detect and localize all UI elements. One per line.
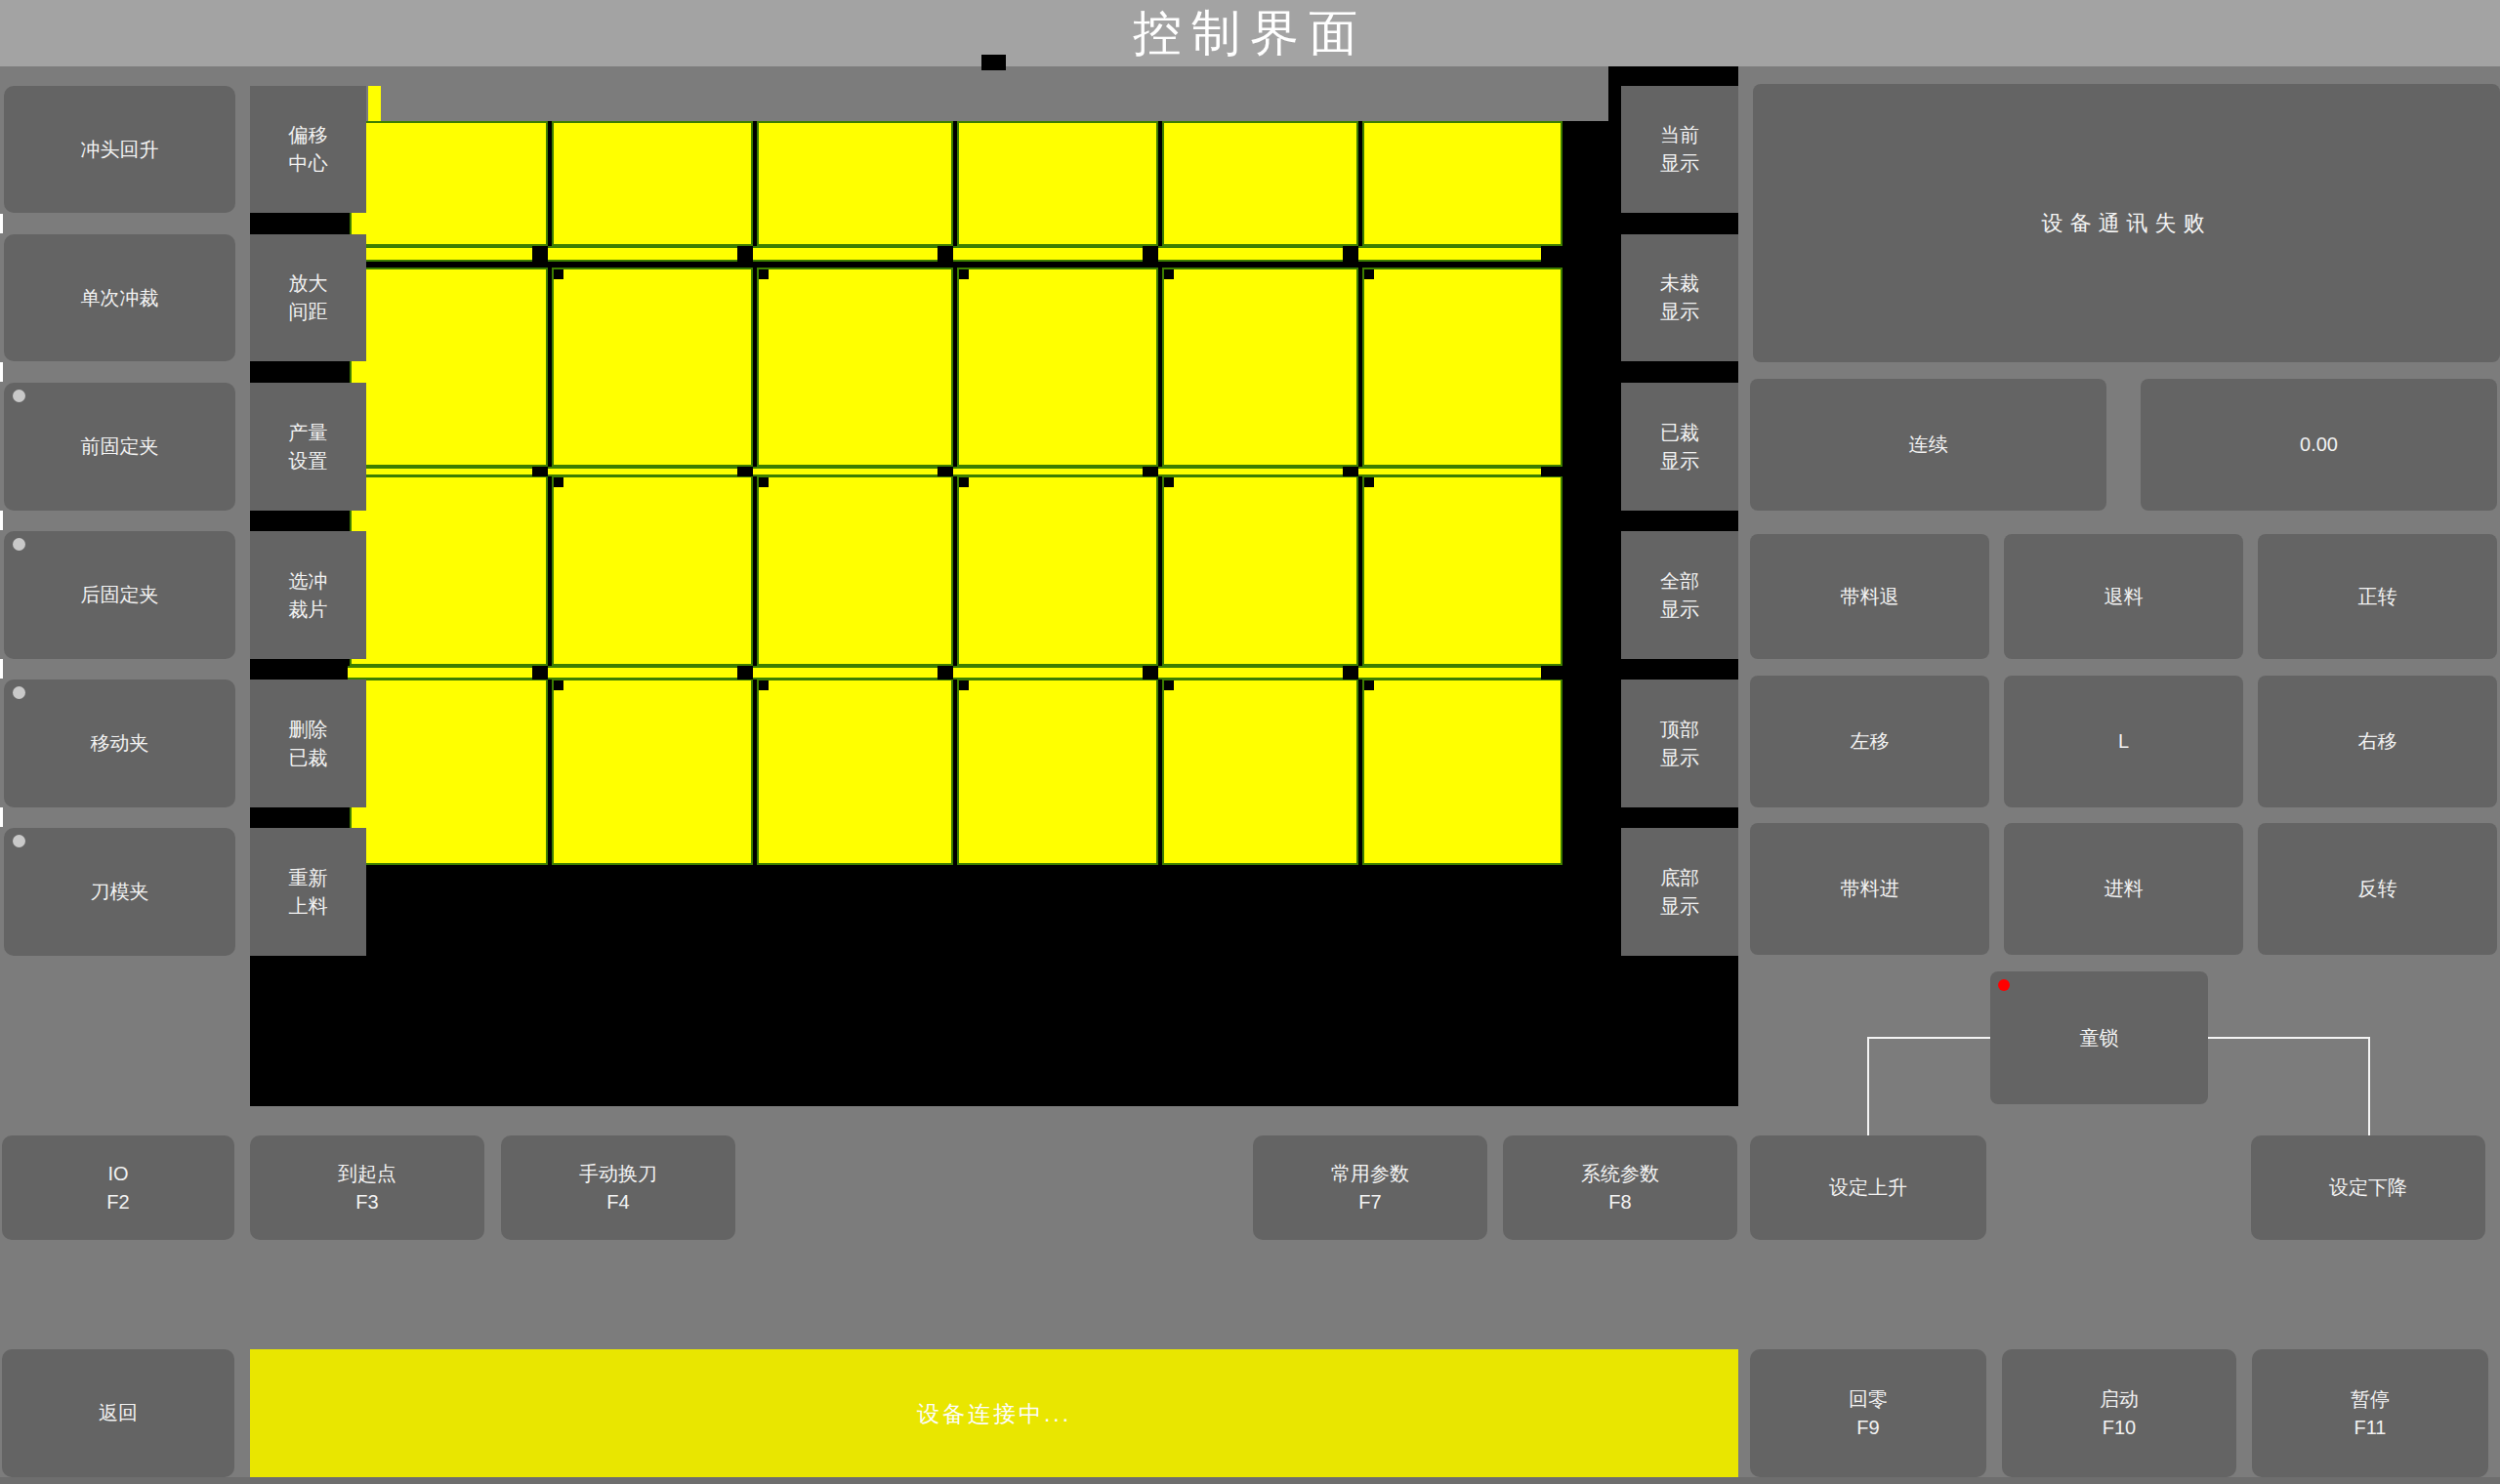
cut-piece[interactable] (1362, 268, 1562, 467)
io-f2-button[interactable]: IOF2 (2, 1135, 234, 1240)
display-cut-button[interactable]: 已裁显示 (1621, 383, 1738, 511)
edge-tick (0, 214, 3, 233)
rear-fixed-clamp-button[interactable]: 后固定夹 (4, 531, 235, 659)
set-rise-button[interactable]: 设定上升 (1750, 1135, 1986, 1240)
strip-notch (937, 467, 953, 476)
cut-piece[interactable] (552, 475, 753, 666)
moving-clamp-button[interactable]: 移动夹 (4, 680, 235, 807)
strip-notch (737, 467, 753, 476)
button-label: 常用参数 (1331, 1160, 1409, 1188)
cut-strip (348, 666, 1562, 680)
button-label: 显示 (1660, 596, 1699, 624)
cut-piece[interactable] (757, 268, 953, 467)
fkey-label: F7 (1358, 1188, 1381, 1216)
value-display[interactable]: 0.00 (2141, 379, 2497, 511)
button-label: 重新 (289, 864, 328, 892)
button-label: 设置 (289, 447, 328, 475)
child-lock-connector (2368, 1037, 2370, 1135)
pause-f11-button[interactable]: 暂停F11 (2252, 1349, 2488, 1477)
button-label: 已裁 (289, 744, 328, 772)
cut-piece[interactable] (757, 475, 953, 666)
strip-notch (1143, 666, 1158, 680)
cut-piece[interactable] (552, 121, 753, 246)
offset-center-button[interactable]: 偏移中心 (250, 86, 366, 213)
l-button[interactable]: L (2004, 676, 2243, 807)
indicator-dot (13, 686, 25, 699)
fkey-label: F8 (1608, 1188, 1631, 1216)
cut-strip (348, 467, 1562, 476)
strip-notch (1343, 246, 1358, 262)
common-params-f7-button[interactable]: 常用参数F7 (1253, 1135, 1487, 1240)
button-label: 刀模夹 (91, 878, 149, 906)
delete-cut-button[interactable]: 删除已裁 (250, 680, 366, 807)
punch-raise-button[interactable]: 冲头回升 (4, 86, 235, 213)
button-label: 显示 (1660, 447, 1699, 475)
strip-notch (1143, 467, 1158, 476)
strip-notch (1343, 666, 1358, 680)
cut-piece[interactable] (350, 475, 548, 666)
cut-piece[interactable] (957, 679, 1158, 865)
connection-status-text: 设备连接中... (917, 1399, 1071, 1429)
button-label: 设定上升 (1829, 1174, 1907, 1202)
button-label: 左移 (1851, 727, 1890, 756)
canvas-top-band (250, 66, 1608, 121)
strip-notch (532, 246, 548, 262)
front-fixed-clamp-button[interactable]: 前固定夹 (4, 383, 235, 511)
button-label: 移动夹 (91, 729, 149, 758)
strip-notch (1541, 246, 1562, 262)
button-label: 上料 (289, 892, 328, 921)
button-label: 底部 (1660, 864, 1699, 892)
title-bar: 控制界面 (0, 0, 2500, 66)
rotate-forward-button[interactable]: 正转 (2258, 534, 2497, 659)
button-label: L (2118, 727, 2129, 756)
button-label: 反转 (2358, 875, 2397, 903)
display-top-button[interactable]: 顶部显示 (1621, 680, 1738, 807)
cut-piece[interactable] (552, 679, 753, 865)
unload-material-button[interactable]: 退料 (2004, 534, 2243, 659)
button-label: 中心 (289, 149, 328, 178)
fkey-label: F2 (106, 1188, 129, 1216)
cut-piece[interactable] (757, 679, 953, 865)
page-title: 控制界面 (1133, 1, 1367, 66)
display-uncut-button[interactable]: 未裁显示 (1621, 234, 1738, 361)
move-right-button[interactable]: 右移 (2258, 676, 2497, 807)
strip-notch (1143, 246, 1158, 262)
button-label: 显示 (1660, 892, 1699, 921)
bottom-edge (0, 1477, 2500, 1484)
edge-tick (0, 659, 3, 679)
system-params-f8-button[interactable]: 系统参数F8 (1503, 1135, 1737, 1240)
display-bottom-button[interactable]: 底部显示 (1621, 828, 1738, 956)
display-all-button[interactable]: 全部显示 (1621, 531, 1738, 659)
button-label: 带料退 (1841, 583, 1899, 611)
button-label: 进料 (2104, 875, 2144, 903)
strip-notch (1343, 467, 1358, 476)
button-label: 系统参数 (1581, 1160, 1659, 1188)
fkey-label: F3 (355, 1188, 378, 1216)
cut-piece[interactable] (1162, 268, 1358, 467)
reload-material-button[interactable]: 重新上料 (250, 828, 366, 956)
indicator-dot (13, 835, 25, 847)
indicator-dot (13, 390, 25, 402)
move-left-button[interactable]: 左移 (1750, 676, 1989, 807)
manual-tool-change-f4-button[interactable]: 手动换刀F4 (501, 1135, 735, 1240)
feed-material-button[interactable]: 进料 (2004, 823, 2243, 955)
to-origin-f3-button[interactable]: 到起点F3 (250, 1135, 484, 1240)
button-label: 带料进 (1841, 875, 1899, 903)
fkey-label: F9 (1856, 1414, 1879, 1442)
back-button[interactable]: 返回 (2, 1349, 234, 1477)
button-label: 暂停 (2351, 1385, 2390, 1414)
canvas-top-left-piece-edge (368, 86, 381, 121)
strip-notch (532, 666, 548, 680)
home-f9-button[interactable]: 回零F9 (1750, 1349, 1986, 1477)
cut-piece[interactable] (957, 475, 1158, 666)
cut-piece[interactable] (957, 268, 1158, 467)
edge-tick (0, 362, 3, 382)
strip-notch (1541, 666, 1562, 680)
button-label: 偏移 (289, 121, 328, 149)
strip-notch (737, 246, 753, 262)
button-label: 冲头回升 (81, 136, 159, 164)
fkey-label: F4 (606, 1188, 629, 1216)
set-lower-button[interactable]: 设定下降 (2251, 1135, 2485, 1240)
button-label: 已裁 (1660, 419, 1699, 447)
device-status-message: 设备通讯失败 (1753, 84, 2500, 362)
cut-strip (348, 246, 1562, 262)
button-label: 显示 (1660, 298, 1699, 326)
fkey-label: F10 (2103, 1414, 2136, 1442)
control-screen: 控制界面 冲头回升 单次冲裁 前固定夹 后固定夹 移动夹 刀模夹 偏移中心 放大… (0, 0, 2500, 1484)
button-label: 间距 (289, 298, 328, 326)
single-punch-button[interactable]: 单次冲裁 (4, 234, 235, 361)
button-label: 选冲 (289, 567, 328, 596)
cut-piece[interactable] (757, 121, 953, 246)
strip-notch (737, 666, 753, 680)
strip-back-button[interactable]: 带料退 (1750, 534, 1989, 659)
cut-piece[interactable] (1362, 475, 1562, 666)
cut-piece[interactable] (957, 121, 1158, 246)
button-label: 返回 (99, 1399, 138, 1427)
button-label: 未裁 (1660, 269, 1699, 298)
alert-dot (1998, 979, 2010, 991)
button-label: 童锁 (2080, 1024, 2119, 1052)
connection-status-bar: 设备连接中... (250, 1349, 1738, 1479)
button-label: 连续 (1909, 431, 1948, 459)
cut-piece[interactable] (350, 121, 548, 246)
die-clamp-button[interactable]: 刀模夹 (4, 828, 235, 956)
start-f10-button[interactable]: 启动F10 (2002, 1349, 2236, 1477)
strip-notch (532, 467, 548, 476)
child-lock-connector (2208, 1037, 2368, 1039)
button-label: 删除 (289, 716, 328, 744)
button-label: 启动 (2100, 1385, 2139, 1414)
fkey-label: F11 (2354, 1414, 2387, 1442)
continuous-mode-button[interactable]: 连续 (1750, 379, 2106, 511)
cut-piece[interactable] (1362, 121, 1562, 246)
cut-piece[interactable] (1362, 679, 1562, 865)
button-label: IO (107, 1160, 128, 1188)
status-message-text: 设备通讯失败 (2042, 209, 2212, 238)
canvas-top-notch (981, 55, 1006, 70)
button-label: 放大 (289, 269, 328, 298)
button-label: 到起点 (338, 1160, 396, 1188)
indicator-dot (13, 538, 25, 551)
button-label: 退料 (2104, 583, 2144, 611)
child-lock-connector (1867, 1037, 1869, 1135)
button-label: 当前 (1660, 121, 1699, 149)
button-label: 前固定夹 (81, 433, 159, 461)
edge-tick (0, 511, 3, 530)
select-piece-button[interactable]: 选冲裁片 (250, 531, 366, 659)
button-label: 正转 (2358, 583, 2397, 611)
child-lock-button[interactable]: 童锁 (1990, 971, 2208, 1104)
child-lock-connector (1867, 1037, 1990, 1039)
button-label: 全部 (1660, 567, 1699, 596)
zoom-gap-button[interactable]: 放大间距 (250, 234, 366, 361)
button-label: 设定下降 (2329, 1174, 2407, 1202)
strip-notch (1541, 467, 1562, 476)
edge-tick (0, 807, 3, 827)
button-label: 裁片 (289, 596, 328, 624)
button-label: 回零 (1849, 1385, 1888, 1414)
button-label: 单次冲裁 (81, 284, 159, 312)
button-label: 显示 (1660, 744, 1699, 772)
cut-piece[interactable] (552, 268, 753, 467)
strip-notch (937, 246, 953, 262)
cut-piece[interactable] (1162, 121, 1358, 246)
value-text: 0.00 (2300, 431, 2338, 459)
rotate-reverse-button[interactable]: 反转 (2258, 823, 2497, 955)
cut-piece[interactable] (350, 268, 548, 467)
button-label: 顶部 (1660, 716, 1699, 744)
button-label: 手动换刀 (579, 1160, 657, 1188)
yield-settings-button[interactable]: 产量设置 (250, 383, 366, 511)
cut-piece[interactable] (1162, 679, 1358, 865)
button-label: 右移 (2358, 727, 2397, 756)
display-current-button[interactable]: 当前显示 (1621, 86, 1738, 213)
button-label: 产量 (289, 419, 328, 447)
cut-preview-canvas[interactable] (250, 66, 1738, 1106)
cut-piece[interactable] (1162, 475, 1358, 666)
strip-notch (937, 666, 953, 680)
button-label: 显示 (1660, 149, 1699, 178)
cut-piece[interactable] (350, 679, 548, 865)
button-label: 后固定夹 (81, 581, 159, 609)
strip-feed-button[interactable]: 带料进 (1750, 823, 1989, 955)
